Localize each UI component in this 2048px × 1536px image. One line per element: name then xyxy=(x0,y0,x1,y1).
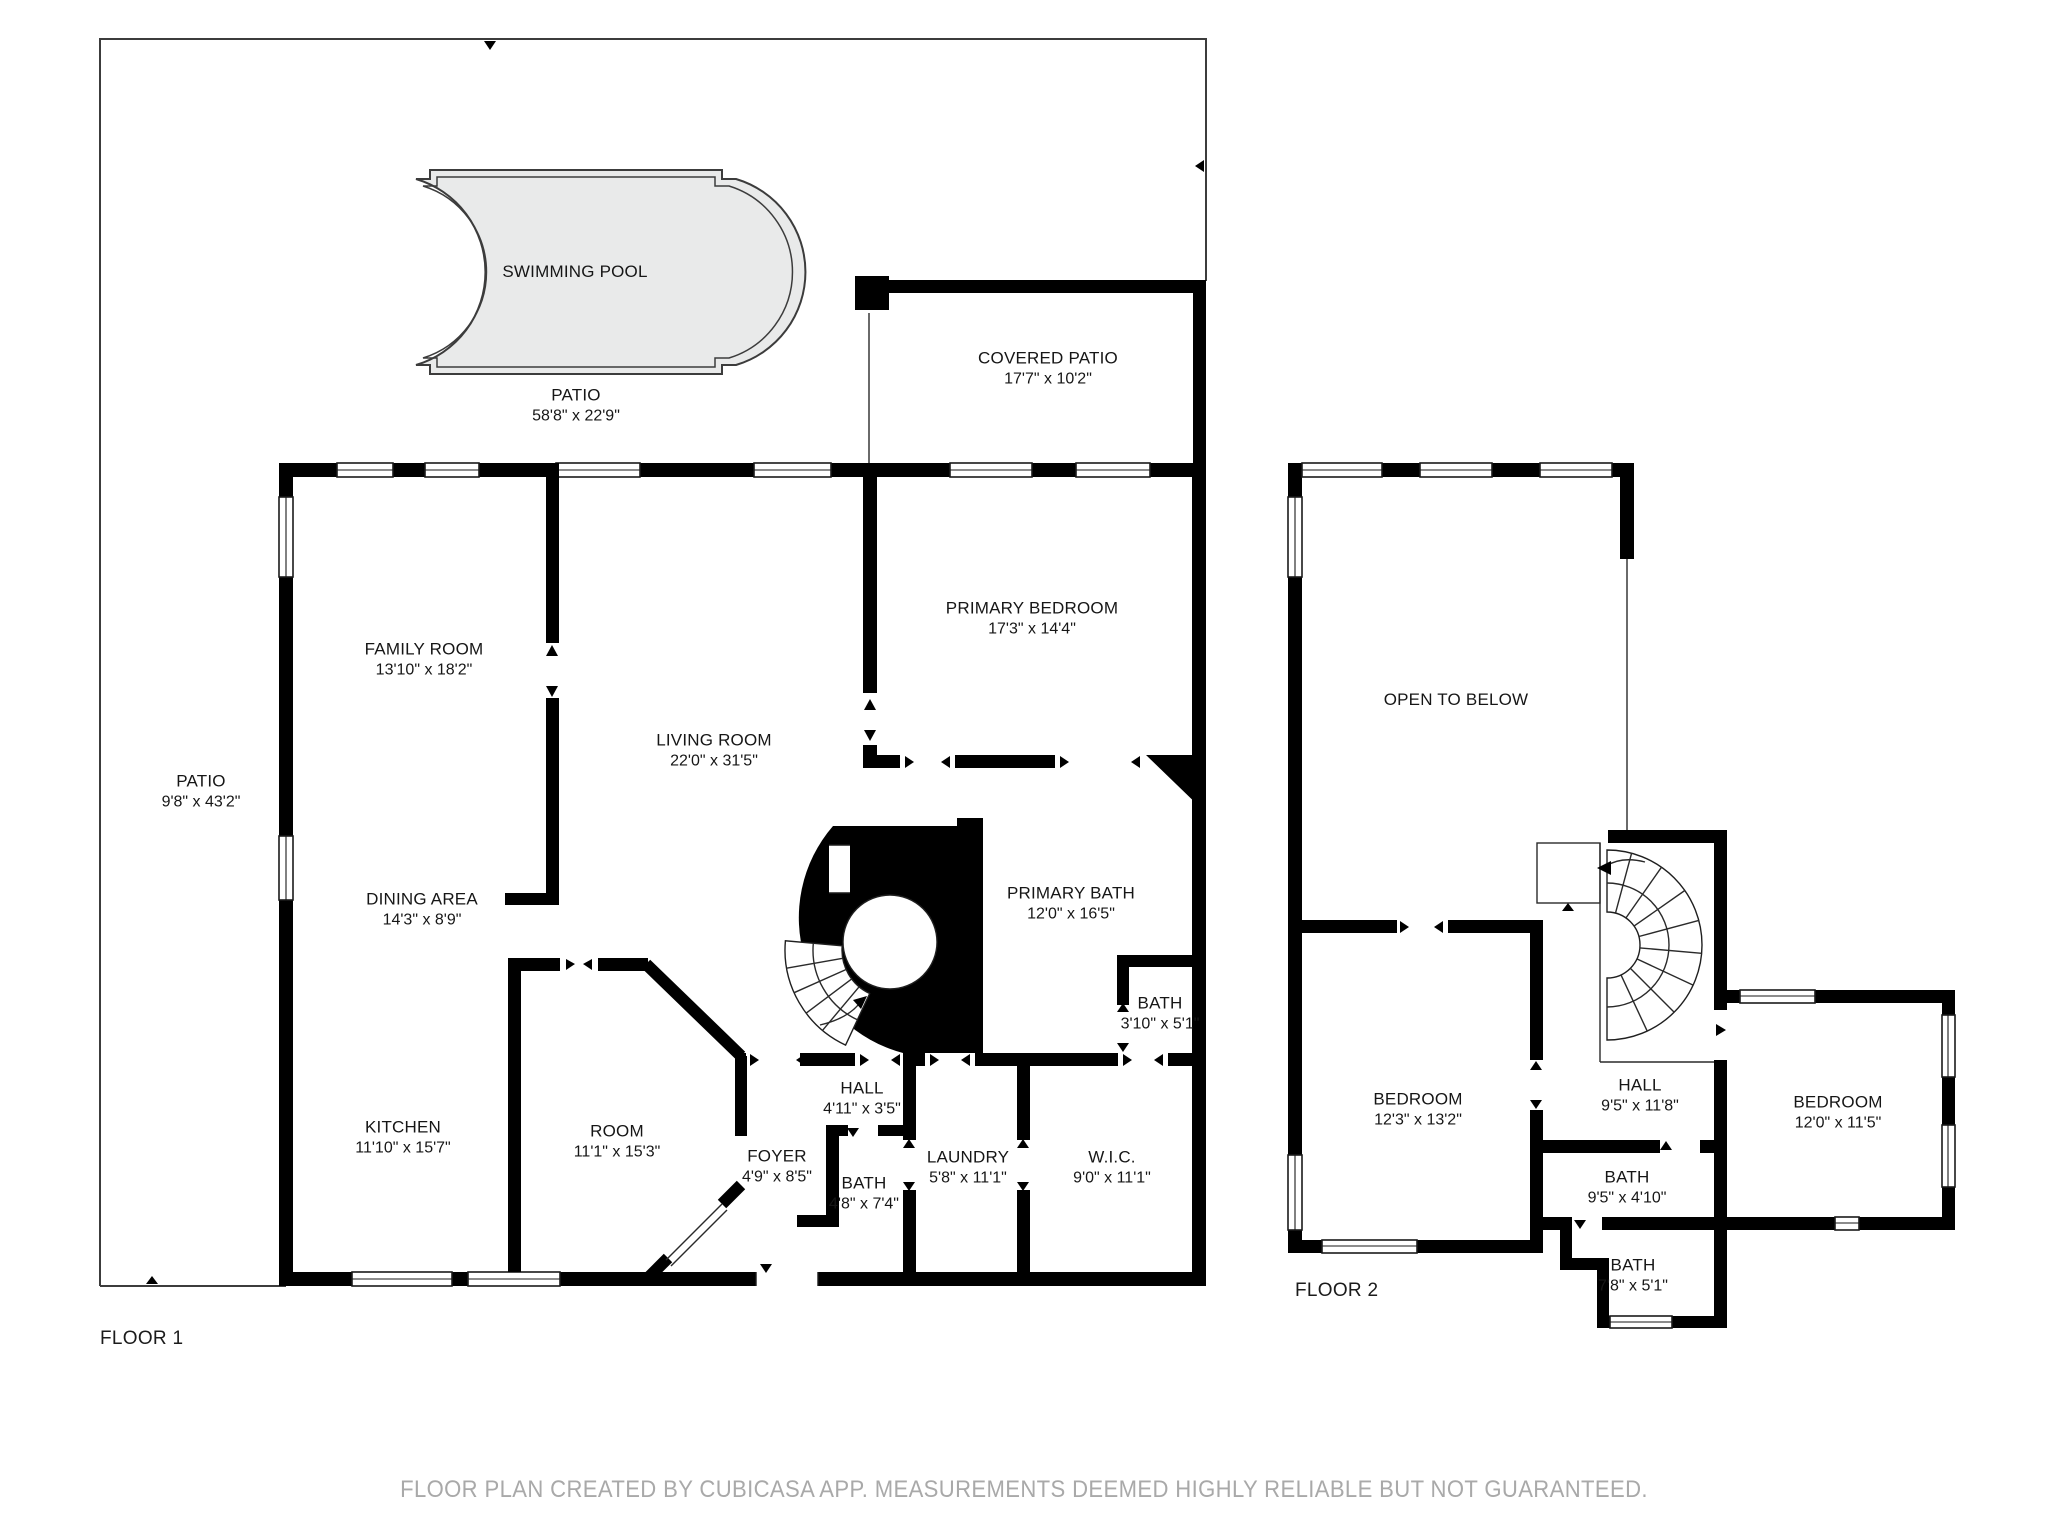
room-label-patio-pool: PATIO 58'8" x 22'9" xyxy=(532,385,620,428)
room-name: HALL xyxy=(823,1078,901,1100)
room-dims: 12'0" x 11'5" xyxy=(1793,1114,1882,1135)
room-label-bath-lower: BATH 7'8" x 5'1" xyxy=(1598,1255,1668,1298)
floor1-label: FLOOR 1 xyxy=(100,1328,183,1350)
room-dims: 11'1" x 15'3" xyxy=(574,1143,661,1164)
room-label-foyer: FOYER 4'9" x 8'5" xyxy=(742,1146,812,1189)
room-name: SWIMMING POOL xyxy=(502,261,647,283)
room-dims: 22'0" x 31'5" xyxy=(656,752,772,773)
room-dims: 9'8" x 43'2" xyxy=(162,793,241,814)
room-dims: 5'8" x 11'1" xyxy=(927,1169,1009,1190)
room-name: LAUNDRY xyxy=(927,1147,1009,1169)
room-label-primary-bath: PRIMARY BATH 12'0" x 16'5" xyxy=(1007,883,1135,926)
room-dims: 4'9" x 8'5" xyxy=(742,1168,812,1189)
room-dims: 17'3" x 14'4" xyxy=(946,620,1118,641)
room-dims: 12'0" x 16'5" xyxy=(1007,905,1135,926)
room-name: HALL xyxy=(1601,1075,1679,1097)
room-label-open-to-below: OPEN TO BELOW xyxy=(1384,689,1529,711)
room-name: BATH xyxy=(829,1173,899,1195)
room-label-family-room: FAMILY ROOM 13'10" x 18'2" xyxy=(365,639,484,682)
room-dims: 7'8" x 5'1" xyxy=(1598,1277,1668,1298)
room-dims: 14'3" x 8'9" xyxy=(366,911,478,932)
room-name: BEDROOM xyxy=(1793,1092,1882,1114)
room-name: FAMILY ROOM xyxy=(365,639,484,661)
room-label-laundry: LAUNDRY 5'8" x 11'1" xyxy=(927,1147,1009,1190)
room-label-hall-f2: HALL 9'5" x 11'8" xyxy=(1601,1075,1679,1118)
room-label-patio-side: PATIO 9'8" x 43'2" xyxy=(162,771,241,814)
room-dims: 17'7" x 10'2" xyxy=(978,370,1118,391)
room-dims: 13'10" x 18'2" xyxy=(365,661,484,682)
room-dims: 58'8" x 22'9" xyxy=(532,407,620,428)
room-label-bedroom-left: BEDROOM 12'3" x 13'2" xyxy=(1373,1089,1462,1132)
room-dims: 11'10" x 15'7" xyxy=(355,1139,450,1160)
room-dims: 9'0" x 11'1" xyxy=(1073,1169,1151,1190)
room-name: COVERED PATIO xyxy=(978,348,1118,370)
floor1-staircase xyxy=(785,818,983,1053)
room-label-living-room: LIVING ROOM 22'0" x 31'5" xyxy=(656,730,772,773)
room-name: BATH xyxy=(1588,1167,1667,1189)
room-dims: 9'5" x 4'10" xyxy=(1588,1189,1667,1210)
floorplan-canvas: SWIMMING POOL PATIO 58'8" x 22'9" COVERE… xyxy=(0,0,2048,1536)
room-name: PRIMARY BATH xyxy=(1007,883,1135,905)
footer-disclaimer: FLOOR PLAN CREATED BY CUBICASA APP. MEAS… xyxy=(82,1476,1966,1504)
room-name: PRIMARY BEDROOM xyxy=(946,598,1118,620)
floor2-staircase xyxy=(1597,850,1702,1040)
room-dims: 12'3" x 13'2" xyxy=(1373,1111,1462,1132)
room-name: FOYER xyxy=(742,1146,812,1168)
room-name: W.I.C. xyxy=(1073,1147,1151,1169)
floorplan-drawing xyxy=(0,0,2048,1536)
room-dims: 4'8" x 7'4" xyxy=(829,1195,899,1216)
room-name: PATIO xyxy=(532,385,620,407)
room-name: LIVING ROOM xyxy=(656,730,772,752)
room-name: BATH xyxy=(1121,993,1200,1015)
room-label-bedroom-right: BEDROOM 12'0" x 11'5" xyxy=(1793,1092,1882,1135)
room-label-kitchen: KITCHEN 11'10" x 15'7" xyxy=(355,1117,450,1160)
room-label-bath-2: BATH 3'10" x 5'1" xyxy=(1121,993,1200,1036)
room-name: BATH xyxy=(1598,1255,1668,1277)
room-name: PATIO xyxy=(162,771,241,793)
room-name: BEDROOM xyxy=(1373,1089,1462,1111)
room-name: OPEN TO BELOW xyxy=(1384,689,1529,711)
room-label-dining-area: DINING AREA 14'3" x 8'9" xyxy=(366,889,478,932)
room-dims: 3'10" x 5'1" xyxy=(1121,1015,1200,1036)
room-name: KITCHEN xyxy=(355,1117,450,1139)
room-label-hall-f1: HALL 4'11" x 3'5" xyxy=(823,1078,901,1121)
room-name: DINING AREA xyxy=(366,889,478,911)
room-label-swimming-pool: SWIMMING POOL xyxy=(502,261,647,283)
room-label-bath-1: BATH 4'8" x 7'4" xyxy=(829,1173,899,1216)
room-label-wic: W.I.C. 9'0" x 11'1" xyxy=(1073,1147,1151,1190)
room-label-primary-bedroom: PRIMARY BEDROOM 17'3" x 14'4" xyxy=(946,598,1118,641)
floor2-label: FLOOR 2 xyxy=(1295,1280,1378,1302)
room-dims: 4'11" x 3'5" xyxy=(823,1100,901,1121)
room-label-room: ROOM 11'1" x 15'3" xyxy=(574,1121,661,1164)
room-dims: 9'5" x 11'8" xyxy=(1601,1097,1679,1118)
room-label-bath-upper: BATH 9'5" x 4'10" xyxy=(1588,1167,1667,1210)
room-name: ROOM xyxy=(574,1121,661,1143)
room-label-covered-patio: COVERED PATIO 17'7" x 10'2" xyxy=(978,348,1118,391)
